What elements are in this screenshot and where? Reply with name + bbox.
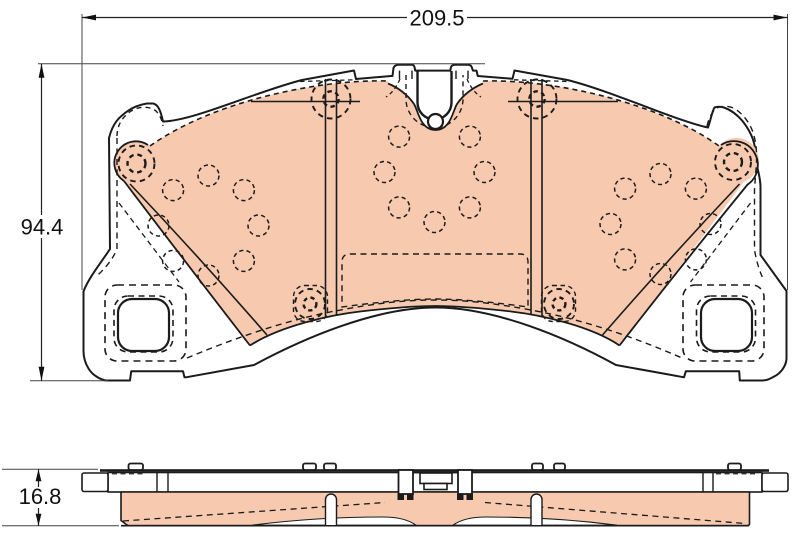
svg-text:209.5: 209.5: [409, 6, 464, 31]
svg-text:94.4: 94.4: [21, 215, 64, 240]
svg-text:16.8: 16.8: [19, 484, 62, 509]
